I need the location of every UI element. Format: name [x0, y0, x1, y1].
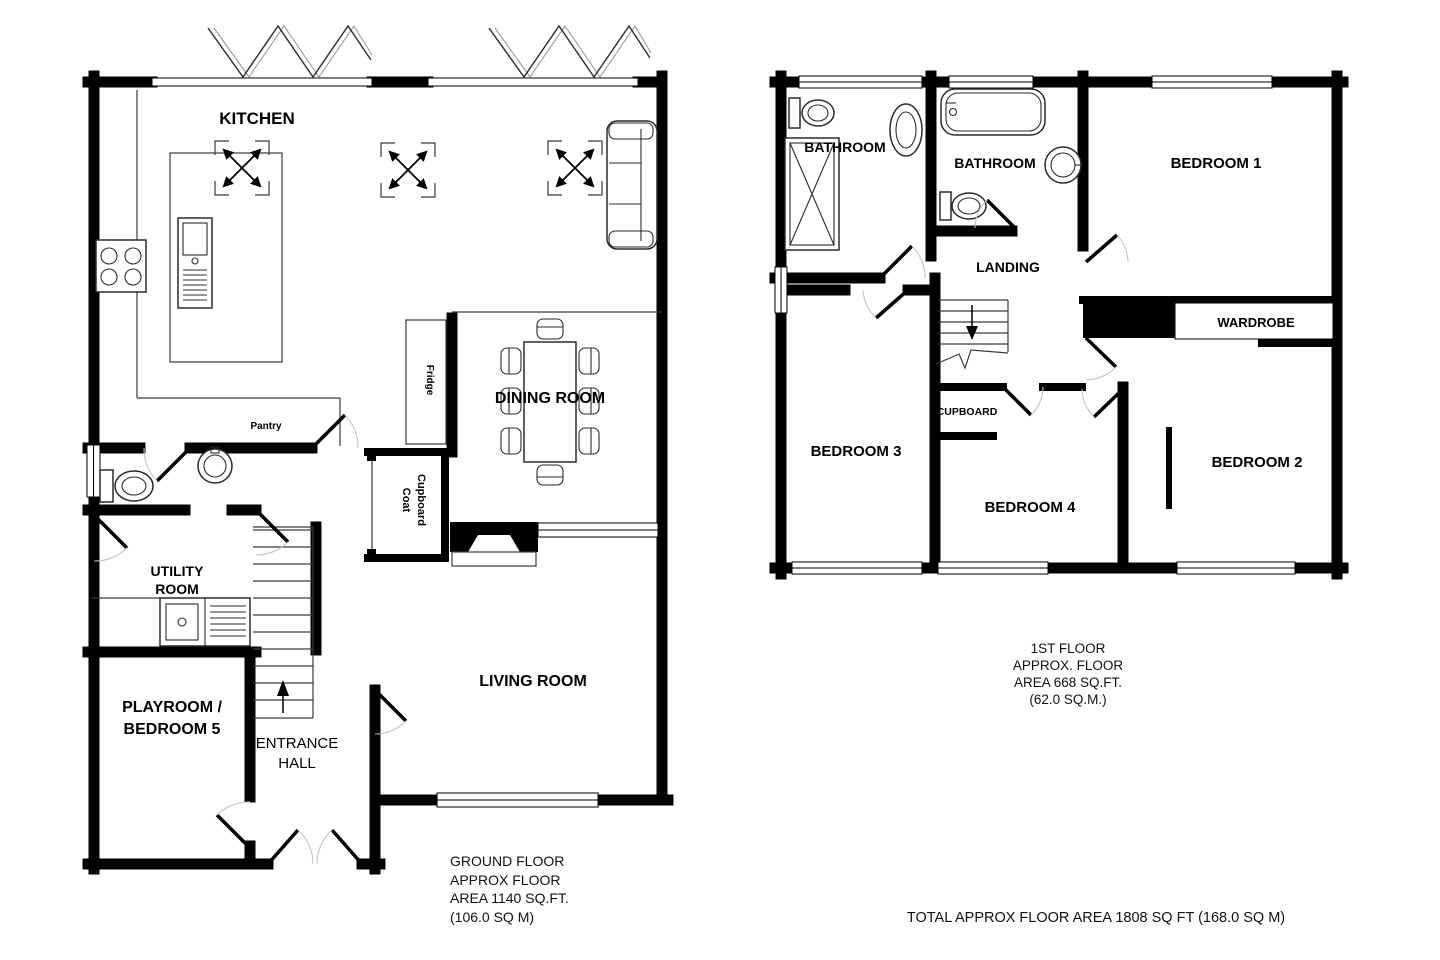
- label-entrance-hall-1: ENTRANCE: [256, 735, 339, 752]
- first-caption-line3: AREA 668 SQ.FT.: [1014, 675, 1122, 690]
- ground-stairs: [253, 527, 313, 718]
- skylight-icon: [548, 141, 602, 195]
- fireplace-icon: [450, 522, 538, 566]
- total-area-caption: TOTAL APPROX FLOOR AREA 1808 SQ FT (168.…: [907, 910, 1285, 926]
- floorplan-svg: KITCHEN DINING ROOM Fridge Pantry Coat C…: [0, 0, 1440, 960]
- first-caption-line2: APPROX. FLOOR: [1013, 658, 1124, 673]
- label-coat-cupboard-2: Cupboard: [415, 474, 427, 526]
- wardrobe: [1083, 296, 1334, 343]
- bathtub-icon: [941, 89, 1045, 135]
- first-caption-line4: (62.0 SQ.M.): [1029, 692, 1106, 707]
- ground-caption-line4: (106.0 SQ M): [450, 909, 534, 925]
- skylight-icon: [215, 141, 269, 195]
- sofa-icon: [607, 121, 657, 249]
- toilet-icon: [940, 192, 986, 220]
- ground-floor-caption: GROUND FLOOR APPROX FLOOR AREA 1140 SQ.F…: [450, 853, 569, 925]
- utility-sink-icon: [92, 598, 250, 646]
- first-floor-plan: BATHROOM BATHROOM BEDROOM 1 LANDING WARD…: [775, 76, 1343, 707]
- label-bedroom-4: BEDROOM 4: [985, 499, 1077, 516]
- label-bedroom-3: BEDROOM 3: [811, 443, 902, 460]
- label-kitchen: KITCHEN: [219, 109, 295, 128]
- floorplan-image: KITCHEN DINING ROOM Fridge Pantry Coat C…: [0, 0, 1440, 960]
- ground-floor-plan: KITCHEN DINING ROOM Fridge Pantry Coat C…: [87, 26, 668, 925]
- toilet-icon: [789, 98, 834, 128]
- pedestal-basin-icon: [890, 104, 922, 156]
- label-utility-1: UTILITY: [151, 563, 205, 579]
- first-caption-line1: 1ST FLOOR: [1031, 641, 1106, 656]
- round-basin-icon: [1045, 147, 1082, 183]
- label-landing: LANDING: [976, 259, 1040, 275]
- label-bedroom-2: BEDROOM 2: [1212, 454, 1303, 471]
- coat-cupboard-door: [367, 452, 376, 558]
- skylight-icon: [381, 143, 435, 197]
- label-living-room: LIVING ROOM: [479, 673, 587, 690]
- ground-interior-walls: [88, 318, 452, 864]
- first-stairs: [936, 300, 1008, 368]
- label-bedroom-1: BEDROOM 1: [1171, 155, 1262, 172]
- label-coat-cupboard-1: Coat: [400, 488, 412, 513]
- ground-caption-line2: APPROX FLOOR: [450, 872, 560, 888]
- wc-toilet-icon: [100, 470, 153, 502]
- label-bathroom-2: BATHROOM: [954, 155, 1035, 171]
- label-playroom-2: BEDROOM 5: [124, 721, 221, 738]
- label-wardrobe: WARDROBE: [1217, 315, 1295, 330]
- label-utility-2: ROOM: [155, 581, 199, 597]
- ground-caption-line3: AREA 1140 SQ.FT.: [450, 890, 569, 906]
- stove-icon: [96, 240, 146, 292]
- label-playroom-1: PLAYROOM /: [122, 699, 222, 716]
- label-bathroom-1: BATHROOM: [804, 139, 885, 155]
- ground-caption-line1: GROUND FLOOR: [450, 853, 564, 869]
- label-fridge: Fridge: [424, 365, 435, 396]
- drainer-icon: [183, 270, 207, 300]
- label-pantry: Pantry: [250, 421, 282, 432]
- label-entrance-hall-2: HALL: [278, 755, 316, 772]
- bifold-door-icon: [208, 26, 651, 77]
- label-dining-room: DINING ROOM: [495, 390, 605, 407]
- label-cupboard: CUPBOARD: [937, 406, 998, 418]
- first-floor-caption: 1ST FLOOR APPROX. FLOOR AREA 668 SQ.FT. …: [1013, 641, 1124, 707]
